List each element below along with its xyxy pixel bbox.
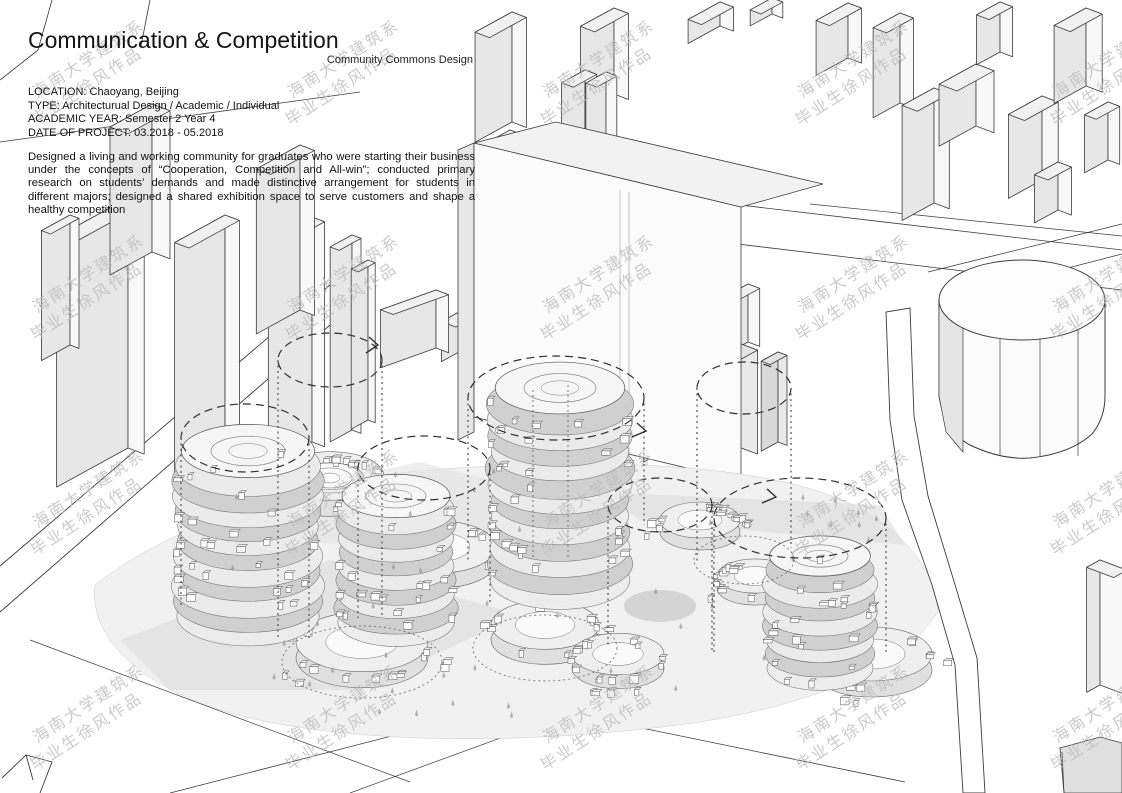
rim-cube-top	[769, 629, 780, 631]
rim-cube	[857, 685, 865, 692]
rim-cube	[602, 451, 610, 455]
rim-cube-top	[833, 581, 844, 583]
building-box-face	[41, 215, 70, 361]
rim-cube	[174, 567, 181, 574]
rim-cube	[854, 701, 859, 707]
rim-cube	[449, 589, 457, 593]
pond	[624, 590, 696, 622]
rim-cube-top	[630, 674, 641, 676]
rim-cube	[379, 597, 386, 601]
rim-cube-top	[174, 476, 185, 478]
building-box-face	[761, 352, 778, 451]
rim-cube	[733, 517, 740, 521]
rim-cube	[583, 641, 588, 648]
rim-cube	[597, 677, 602, 683]
rim-cube	[790, 619, 799, 623]
rim-cube-top	[532, 421, 542, 423]
rim-cube-top	[403, 621, 414, 623]
rim-cube	[659, 518, 665, 522]
rim-cube	[178, 588, 186, 595]
rim-cube-top	[188, 517, 199, 519]
building-box-face	[900, 13, 914, 108]
rim-cube	[310, 667, 318, 674]
rim-cube	[488, 572, 495, 576]
building-box-face	[330, 235, 352, 442]
building-box-face	[70, 215, 79, 348]
rim-cube	[422, 583, 430, 590]
info-location: LOCATION: Chaoyang, Beijing	[28, 86, 279, 100]
rim-cube	[310, 542, 317, 549]
rim-cube	[372, 676, 380, 682]
rim-cube-top	[648, 518, 659, 520]
rim-cube-top	[237, 544, 248, 546]
rim-cube	[174, 576, 183, 582]
rim-cube	[324, 459, 329, 463]
rim-cube	[336, 503, 342, 507]
corner-building-top	[1060, 737, 1122, 793]
rim-cube-top	[729, 566, 740, 568]
rim-cube	[264, 540, 270, 546]
faceted-cylinder-building	[939, 260, 1105, 458]
rim-cube-top	[373, 467, 384, 469]
rim-cube	[394, 611, 402, 616]
rim-cube	[187, 594, 195, 601]
rim-cube	[417, 584, 423, 589]
rim-cube	[772, 662, 777, 666]
rim-cube	[797, 588, 803, 593]
rim-cube	[841, 604, 846, 608]
road-line	[0, 50, 38, 80]
roof-plate	[495, 362, 625, 414]
rim-cube	[729, 568, 738, 573]
rim-cube	[630, 676, 639, 683]
rim-cube	[416, 597, 420, 602]
rim-cube	[278, 451, 284, 457]
rim-cube	[609, 677, 615, 684]
rim-cube	[907, 639, 915, 645]
rim-cube	[748, 595, 754, 601]
rim-cube	[343, 676, 349, 682]
building-box-face	[225, 215, 239, 460]
roof-plate	[181, 424, 314, 477]
rim-cube	[488, 398, 493, 405]
rim-cube	[714, 575, 718, 579]
rim-cube	[237, 546, 245, 552]
rim-cube	[840, 698, 849, 705]
rim-cube	[648, 520, 656, 527]
rim-cube	[337, 612, 343, 617]
rim-cube-top	[716, 510, 727, 512]
rim-cube	[447, 509, 455, 516]
rim-cube	[373, 469, 381, 474]
rim-cube	[656, 526, 662, 532]
rim-cube	[268, 511, 275, 516]
rim-cube	[636, 644, 640, 648]
rim-cube	[620, 436, 629, 443]
rim-cube-top	[518, 545, 529, 547]
rim-cube	[190, 564, 195, 570]
rim-cube	[424, 649, 430, 655]
rim-cube	[348, 573, 355, 580]
building-box-face	[512, 12, 526, 127]
tower	[485, 362, 635, 609]
rim-cube-top	[310, 665, 321, 667]
project-info: LOCATION: Chaoyang, Beijing TYPE: Archit…	[28, 86, 279, 140]
rim-cube	[607, 690, 614, 697]
rim-cube-top	[944, 658, 954, 660]
rim-cube-top	[187, 592, 198, 594]
rim-cube	[518, 547, 526, 553]
rim-cube	[479, 534, 485, 540]
road-line	[810, 204, 1122, 236]
rim-cube	[573, 667, 580, 673]
rim-cube-top	[620, 434, 631, 436]
rim-cube	[926, 655, 933, 659]
cylinder-top	[939, 260, 1105, 340]
building-box-face	[436, 290, 449, 353]
rim-cube-top	[502, 539, 513, 541]
rim-cube	[849, 666, 854, 670]
rim-cube	[336, 563, 343, 570]
rim-cube-top	[763, 637, 774, 639]
rim-cube	[511, 497, 518, 504]
rim-cube	[773, 623, 777, 628]
rim-cube	[519, 650, 523, 657]
rim-cube	[867, 612, 871, 618]
rim-cube	[371, 594, 380, 600]
info-date: DATE OF PROJECT: 03.2018 - 05.2018	[28, 127, 279, 141]
rim-cube	[188, 474, 192, 479]
rim-cube-top	[174, 574, 185, 576]
rim-cube	[763, 639, 772, 643]
rim-cube	[616, 539, 623, 545]
rim-cube	[624, 463, 632, 467]
rim-cube	[437, 547, 443, 551]
rim-cube	[568, 658, 575, 663]
rim-cube	[573, 649, 581, 654]
rim-cube	[809, 681, 814, 688]
info-type: TYPE: Architecturual Design / Academic /…	[28, 100, 279, 114]
rim-cube	[526, 470, 532, 475]
rim-cube	[532, 566, 538, 573]
rim-cube	[239, 493, 244, 500]
rim-cube	[565, 653, 569, 657]
rim-cube	[469, 531, 476, 537]
rim-cube-top	[734, 563, 745, 565]
rim-cube-top	[229, 529, 240, 531]
rim-cube	[203, 573, 209, 580]
rim-cube	[769, 631, 778, 636]
rim-cube	[302, 581, 308, 587]
rim-cube	[869, 605, 875, 612]
rim-cube	[744, 523, 749, 528]
page-title: Communication & Competition	[28, 27, 339, 54]
tower	[334, 474, 459, 646]
rim-cube	[525, 438, 533, 443]
page-subtitle: Community Commons Design	[270, 54, 473, 66]
rim-cube	[718, 589, 727, 593]
rim-cube	[817, 557, 822, 564]
rim-cube	[592, 691, 600, 695]
rim-cube	[792, 637, 800, 644]
rim-cube	[285, 573, 293, 580]
rim-cube-top	[854, 699, 861, 701]
rim-cube-top	[605, 625, 616, 627]
rim-cube	[841, 597, 847, 602]
project-description: Designed a living and working community …	[28, 151, 475, 217]
rim-cube	[489, 441, 493, 447]
rim-cube-top	[481, 620, 492, 622]
rim-cube-top	[849, 634, 860, 636]
rim-cube-top	[840, 696, 851, 698]
rim-cube	[512, 419, 517, 424]
rim-cube-top	[790, 617, 801, 619]
rim-cube-top	[602, 449, 613, 451]
rim-cube	[403, 623, 412, 630]
rim-cube	[389, 674, 397, 680]
rim-cube	[716, 512, 725, 516]
rim-cube	[828, 601, 835, 607]
info-academic-year: ACADEMIC YEAR: Semester 2 Year 4	[28, 113, 279, 127]
rim-cube-top	[587, 614, 597, 616]
rim-cube	[587, 616, 595, 622]
rim-cube	[286, 588, 291, 593]
rim-cube	[362, 462, 366, 469]
rim-cube	[174, 549, 180, 556]
rim-cube	[944, 660, 952, 665]
rim-cube	[447, 525, 453, 529]
rim-cube	[444, 660, 452, 665]
rim-cube	[645, 534, 649, 540]
rim-cube-top	[178, 586, 189, 588]
rim-cube	[621, 551, 629, 556]
rim-cube	[441, 665, 449, 672]
rim-cube	[389, 525, 394, 530]
building-box-face	[351, 260, 368, 429]
rim-cube-top	[175, 513, 186, 515]
rim-cube-top	[371, 592, 382, 594]
building-box-face	[1100, 560, 1122, 695]
rim-cube	[528, 485, 533, 492]
rim-cube	[609, 558, 616, 564]
rim-cube	[343, 458, 349, 464]
rim-cube	[833, 583, 842, 589]
rim-cube	[722, 568, 726, 573]
rim-cube	[290, 602, 297, 606]
rim-cube-top	[621, 549, 632, 551]
rim-cube	[278, 602, 283, 609]
ring-court	[515, 612, 574, 639]
corner-box-outline	[2, 755, 52, 793]
rim-cube	[658, 664, 663, 669]
rim-cube	[336, 593, 343, 599]
rim-cube	[343, 613, 347, 619]
building-box-face	[778, 352, 787, 445]
rim-cube	[799, 644, 804, 649]
rim-cube	[441, 577, 448, 583]
rim-cube-top	[491, 531, 502, 533]
rim-cube	[488, 523, 495, 529]
rim-cube	[491, 533, 500, 540]
rim-cube	[229, 531, 238, 537]
rim-cube	[332, 457, 340, 463]
rim-cube	[659, 657, 665, 661]
tower	[762, 536, 879, 690]
rim-cube	[300, 663, 306, 668]
tower	[171, 424, 325, 646]
rim-cube	[188, 519, 196, 525]
rim-cube	[510, 545, 518, 551]
rim-cube	[635, 689, 639, 695]
rim-cube	[616, 528, 622, 535]
rim-cube	[849, 636, 858, 642]
building-box-face	[1087, 560, 1100, 692]
rim-cube	[274, 588, 281, 595]
rim-cube-top	[623, 417, 634, 419]
rim-cube	[784, 679, 789, 684]
rim-cube	[207, 542, 214, 548]
rim-cube	[449, 615, 455, 622]
rim-cube	[574, 422, 581, 428]
rim-cube	[605, 627, 614, 631]
rim-cube	[256, 563, 260, 567]
rim-cube	[820, 602, 829, 606]
rim-cube-top	[356, 591, 367, 593]
rim-cube	[497, 467, 502, 471]
rim-cube-top	[718, 587, 729, 589]
